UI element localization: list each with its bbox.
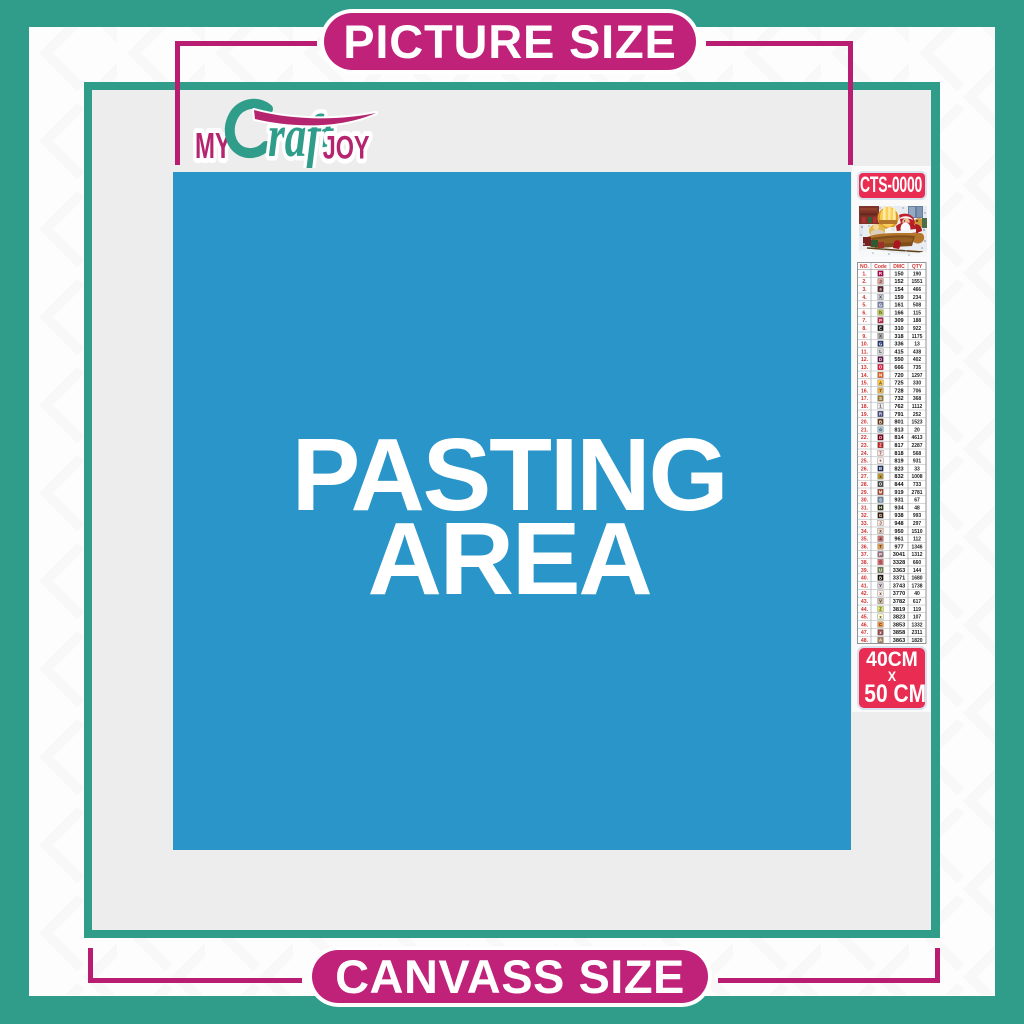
svg-text:T: T	[879, 544, 882, 549]
svg-text:508: 508	[913, 302, 922, 308]
svg-text:814: 814	[894, 435, 904, 441]
svg-text:1738: 1738	[911, 583, 922, 589]
svg-text:U: U	[879, 567, 882, 572]
svg-text:8.: 8.	[862, 326, 867, 332]
svg-text:30.: 30.	[861, 497, 869, 503]
svg-text:21.: 21.	[861, 427, 869, 433]
svg-text:38.: 38.	[861, 560, 869, 566]
svg-text:12.: 12.	[861, 357, 869, 363]
svg-text:S: S	[879, 395, 882, 400]
svg-text:402: 402	[913, 357, 922, 363]
svg-text:h: h	[879, 310, 882, 315]
svg-text:X: X	[879, 333, 882, 338]
svg-text:3041: 3041	[893, 552, 905, 558]
svg-text:234: 234	[913, 294, 922, 300]
svg-text:32.: 32.	[861, 513, 869, 519]
svg-text:1332: 1332	[911, 622, 922, 628]
svg-text:Y: Y	[879, 583, 882, 588]
svg-text:S: S	[879, 497, 882, 502]
svg-text:45.: 45.	[861, 614, 869, 620]
svg-text:15.: 15.	[861, 380, 869, 386]
svg-text:818: 818	[894, 450, 903, 456]
svg-text:A: A	[879, 380, 882, 385]
svg-text:297: 297	[913, 521, 922, 527]
svg-text:150: 150	[894, 271, 903, 277]
svg-text:31.: 31.	[861, 505, 869, 511]
svg-text:977: 977	[894, 544, 903, 550]
svg-text:3853: 3853	[893, 622, 905, 628]
svg-text:67: 67	[914, 497, 920, 503]
svg-text:10.: 10.	[861, 341, 869, 347]
svg-text:1551: 1551	[911, 279, 922, 285]
svg-text:6.: 6.	[862, 310, 867, 316]
svg-text:P: P	[879, 317, 882, 322]
svg-text:X: X	[879, 294, 882, 299]
svg-text:B: B	[879, 466, 882, 471]
svg-text:S: S	[879, 559, 882, 564]
svg-text:112: 112	[913, 536, 921, 542]
svg-text:20.: 20.	[861, 419, 869, 425]
svg-text:4.: 4.	[862, 294, 867, 300]
svg-text:791: 791	[894, 411, 903, 417]
svg-text:252: 252	[913, 411, 922, 417]
svg-text:E: E	[879, 325, 882, 330]
svg-text:3823: 3823	[893, 614, 905, 620]
svg-text:o: o	[879, 427, 882, 432]
svg-text:2.: 2.	[862, 279, 867, 285]
svg-text:154: 154	[894, 287, 904, 293]
svg-text:D: D	[879, 356, 882, 361]
svg-text:2311: 2311	[912, 630, 923, 636]
svg-text:368: 368	[913, 396, 922, 402]
svg-text:9.: 9.	[862, 333, 867, 339]
svg-text:832: 832	[894, 474, 903, 480]
svg-text:48.: 48.	[861, 638, 869, 644]
svg-text:35.: 35.	[861, 536, 869, 542]
svg-text:819: 819	[894, 458, 903, 464]
svg-text:844: 844	[894, 482, 904, 488]
svg-text:931: 931	[894, 497, 903, 503]
svg-text:5.: 5.	[862, 302, 867, 308]
svg-text:19.: 19.	[861, 411, 869, 417]
svg-text:3371: 3371	[893, 575, 905, 581]
svg-text:29.: 29.	[861, 489, 869, 495]
svg-text:1175: 1175	[912, 333, 923, 339]
svg-text:28.: 28.	[861, 482, 869, 488]
svg-text:1523: 1523	[911, 419, 922, 425]
svg-text:C: C	[879, 622, 882, 627]
svg-text:309: 309	[894, 318, 903, 324]
svg-text:24.: 24.	[861, 450, 869, 456]
svg-text:33.: 33.	[861, 521, 869, 527]
svg-text:330: 330	[913, 380, 922, 386]
svg-text:20: 20	[914, 427, 920, 433]
svg-text:1820: 1820	[911, 638, 922, 644]
svg-text:107: 107	[913, 614, 922, 620]
svg-text:161: 161	[894, 302, 903, 308]
svg-text:310: 310	[894, 326, 903, 332]
svg-text:152: 152	[894, 279, 903, 285]
svg-text:18.: 18.	[861, 404, 869, 410]
svg-text:617: 617	[913, 599, 922, 605]
svg-text:16.: 16.	[861, 388, 869, 394]
svg-text:3743: 3743	[893, 583, 905, 589]
svg-text:37.: 37.	[861, 552, 869, 558]
svg-text:3328: 3328	[893, 560, 905, 566]
svg-text:801: 801	[894, 419, 903, 425]
svg-text:115: 115	[913, 310, 921, 316]
svg-text:720: 720	[894, 372, 903, 378]
svg-text:G: G	[879, 341, 882, 346]
svg-text:47.: 47.	[861, 630, 869, 636]
svg-text:318: 318	[894, 333, 903, 339]
svg-text:22.: 22.	[861, 435, 869, 441]
svg-text:3863: 3863	[893, 638, 905, 644]
svg-text:1.: 1.	[862, 271, 867, 277]
svg-text:144: 144	[913, 567, 922, 573]
svg-text:993: 993	[913, 513, 922, 519]
svg-text:Code: Code	[874, 263, 887, 269]
svg-text:48: 48	[914, 505, 920, 511]
svg-text:Z: Z	[879, 606, 882, 611]
svg-text:25.: 25.	[861, 458, 869, 464]
svg-text:2781: 2781	[911, 489, 922, 495]
svg-text:11.: 11.	[861, 349, 868, 355]
svg-text:166: 166	[894, 310, 903, 316]
svg-text:3363: 3363	[893, 567, 905, 573]
svg-text:159: 159	[894, 294, 903, 300]
svg-text:938: 938	[894, 513, 903, 519]
svg-text:1346: 1346	[911, 544, 922, 550]
svg-text:39.: 39.	[861, 567, 869, 573]
svg-text:N: N	[879, 372, 882, 377]
svg-text:931: 931	[913, 458, 922, 464]
svg-text:7.: 7.	[862, 318, 867, 324]
svg-text:1112: 1112	[912, 404, 923, 410]
svg-text:3819: 3819	[893, 606, 905, 612]
svg-text:660: 660	[913, 560, 922, 566]
svg-text:27.: 27.	[861, 474, 869, 480]
svg-text:44.: 44.	[861, 606, 869, 612]
svg-text:G: G	[879, 302, 882, 307]
svg-text:735: 735	[913, 365, 922, 371]
svg-text:M: M	[879, 489, 883, 494]
svg-text:33: 33	[914, 466, 920, 472]
svg-text:728: 728	[894, 388, 903, 394]
svg-text:725: 725	[894, 380, 903, 386]
svg-text:43.: 43.	[861, 599, 869, 605]
svg-text:26.: 26.	[861, 466, 869, 472]
svg-text:706: 706	[913, 388, 922, 394]
svg-text:36.: 36.	[861, 544, 869, 550]
svg-text:732: 732	[894, 396, 903, 402]
svg-text:P: P	[879, 551, 882, 556]
svg-text:G: G	[879, 512, 882, 517]
svg-text:V: V	[879, 598, 882, 603]
svg-text:NO.: NO.	[860, 263, 870, 269]
svg-text:13.: 13.	[861, 365, 869, 371]
svg-text:R: R	[879, 411, 882, 416]
svg-text:41.: 41.	[861, 583, 869, 589]
svg-text:823: 823	[894, 466, 903, 472]
svg-text:14.: 14.	[861, 372, 869, 378]
svg-text:4613: 4613	[911, 435, 922, 441]
svg-text:948: 948	[894, 521, 903, 527]
svg-text:817: 817	[894, 443, 903, 449]
svg-text:934: 934	[894, 505, 904, 511]
svg-text:Z: Z	[879, 442, 882, 447]
svg-text:1008: 1008	[911, 474, 922, 480]
svg-text:17.: 17.	[861, 396, 869, 402]
svg-text:1297: 1297	[911, 372, 922, 378]
svg-text:438: 438	[913, 349, 922, 355]
svg-text:23.: 23.	[861, 443, 869, 449]
svg-text:JOY: JOY	[323, 130, 370, 165]
svg-text:813: 813	[894, 427, 903, 433]
svg-text:922: 922	[913, 326, 922, 332]
svg-text:40: 40	[914, 591, 920, 597]
svg-text:336: 336	[894, 341, 903, 347]
svg-text:950: 950	[894, 528, 903, 534]
svg-text:188: 188	[913, 318, 922, 324]
svg-text:1312: 1312	[911, 552, 922, 558]
svg-text:3770: 3770	[893, 591, 905, 597]
svg-text:2287: 2287	[911, 443, 922, 449]
svg-text:568: 568	[913, 450, 922, 456]
svg-text:3.: 3.	[862, 287, 867, 293]
svg-text:3782: 3782	[893, 599, 905, 605]
svg-text:961: 961	[894, 536, 903, 542]
svg-text:B: B	[879, 575, 882, 580]
svg-text:1510: 1510	[911, 528, 922, 534]
svg-text:550: 550	[894, 357, 903, 363]
svg-text:QTY: QTY	[912, 263, 923, 269]
svg-text:666: 666	[894, 365, 903, 371]
svg-text:34.: 34.	[861, 528, 869, 534]
svg-text:3858: 3858	[893, 630, 905, 636]
svg-text:DMC: DMC	[893, 263, 905, 269]
svg-text:L: L	[879, 349, 882, 354]
svg-text:415: 415	[894, 349, 903, 355]
svg-text:13: 13	[914, 341, 920, 347]
svg-text:R: R	[879, 271, 882, 276]
svg-text:A: A	[879, 637, 882, 642]
svg-text:1680: 1680	[911, 575, 922, 581]
svg-text:46.: 46.	[861, 622, 869, 628]
svg-text:42.: 42.	[861, 591, 869, 597]
svg-text:466: 466	[913, 287, 922, 293]
svg-text:919: 919	[894, 489, 903, 495]
svg-text:119: 119	[913, 606, 921, 612]
svg-text:190: 190	[913, 271, 922, 277]
svg-text:B: B	[879, 419, 882, 424]
svg-text:40.: 40.	[861, 575, 869, 581]
svg-text:762: 762	[894, 404, 903, 410]
svg-text:733: 733	[913, 482, 922, 488]
svg-text:H: H	[879, 505, 882, 510]
